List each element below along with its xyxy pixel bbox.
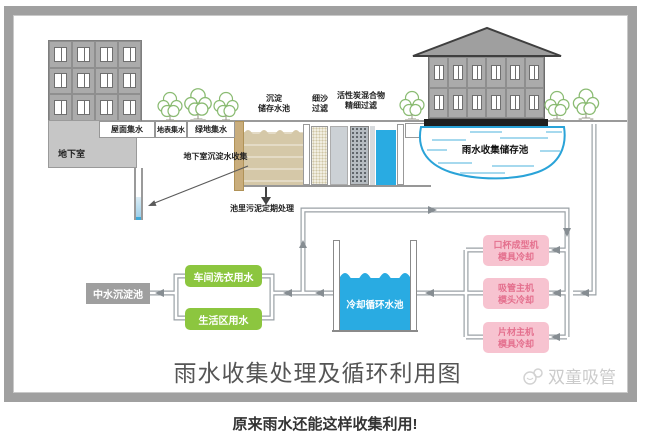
arrow-left-icon [283, 289, 292, 297]
basement-collect-arrow-icon [148, 166, 248, 206]
cooling-pool-wall [333, 240, 340, 331]
cooling-water-wave [340, 273, 410, 281]
laundry-water-box: 车间洗衣用水 [185, 265, 262, 287]
arrow-down-icon [563, 228, 571, 237]
tree-icon [545, 92, 569, 121]
sludge-arrow-icon [261, 187, 271, 205]
pond-label: 雨水收集储存池 [440, 146, 550, 156]
tree-icon [400, 92, 424, 121]
tree-icon [158, 93, 182, 122]
watermark-text: 双童吸管 [548, 363, 616, 388]
cooling-pool-label: 冷却循环水池 [340, 297, 410, 311]
arrow-left-icon [315, 289, 324, 297]
caption-text: 原来雨水还能这样收集利用! [0, 413, 650, 434]
house-roof [413, 28, 561, 56]
tree-icon [573, 89, 598, 119]
living-water-box: 生活区用水 [185, 308, 262, 330]
arrow-left-icon [552, 289, 561, 297]
watermark: 双童吸管 [522, 363, 616, 388]
straw-machine-box: 吸管主机 模头冷却 [483, 278, 549, 309]
sheet-machine-box: 片材主机 模具冷却 [483, 322, 549, 353]
arrow-left-icon [425, 289, 434, 297]
watermark-logo-icon [522, 366, 544, 386]
reclaimed-water-box: 中水沉淀池 [86, 283, 150, 304]
arrow-left-icon [155, 289, 164, 297]
trees-group [158, 89, 599, 121]
tan-water-wave [244, 130, 303, 137]
tree-icon [185, 89, 211, 120]
arrow-up-icon [299, 240, 307, 248]
cooling-pool-wall [410, 240, 417, 331]
arrow-left-icon [551, 333, 560, 341]
cup-machine-box: 口杯成型机 模具冷却 [483, 235, 549, 266]
diagram-title: 雨水收集处理及循环利用图 [145, 354, 490, 388]
arrow-left-icon [580, 289, 589, 297]
arrow-right-icon [428, 206, 437, 214]
arrow-left-icon [551, 246, 560, 254]
screenshot-root: 地下室 屋面集水 地表集水 绿地集水 沉淀 储存水池 细沙 过滤 活性炭混合物 … [0, 0, 650, 444]
tree-icon [214, 93, 238, 122]
cooling-pool-base [332, 330, 418, 332]
